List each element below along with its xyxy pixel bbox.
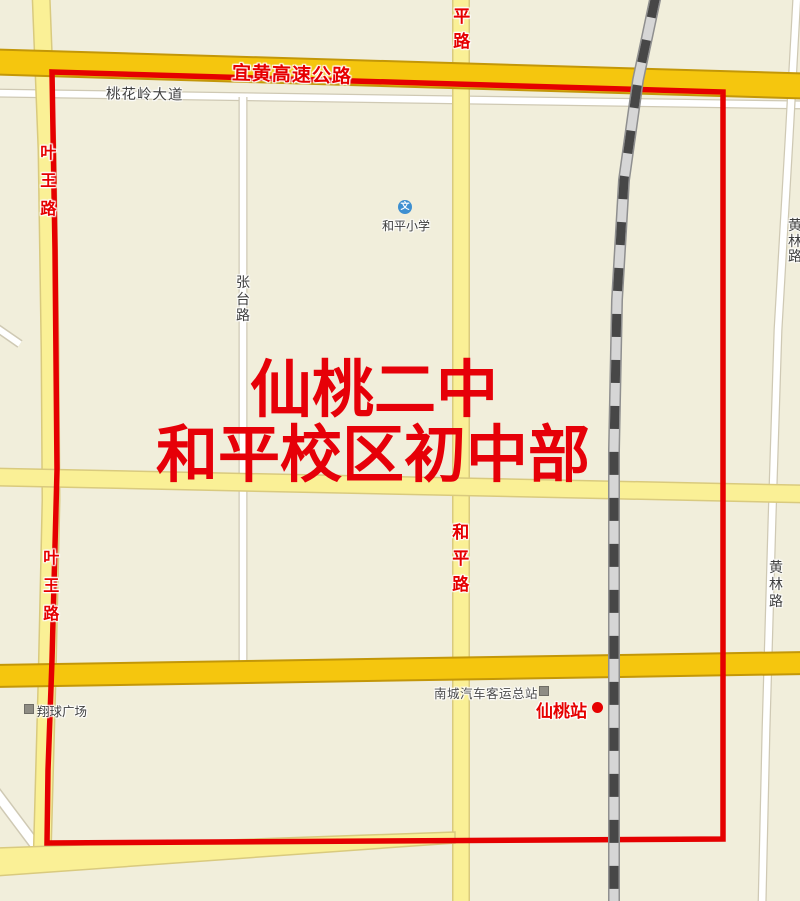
xiantao-station-label: 仙桃站	[536, 697, 587, 722]
huanglin-road-label-south: 黄林路	[768, 560, 784, 611]
railway-casing	[614, 0, 656, 901]
zone-title-line1: 仙桃二中	[250, 358, 498, 422]
expressway-road-label: 宜黄高速公路	[232, 58, 353, 89]
bus-terminal-square-icon	[539, 686, 549, 696]
plaza-square-icon	[24, 704, 34, 714]
road-stub-southwest-fill	[0, 790, 36, 846]
xiantao-station-dot-icon	[592, 702, 603, 713]
yewang-road-label-north: 叶王路	[39, 139, 57, 223]
zone-title-line2: 和平校区初中部	[156, 423, 590, 487]
south-arterial-road-fill	[0, 663, 800, 676]
heping-road-label-mid: 和平路	[451, 520, 471, 598]
huanglin-road-fill	[762, 0, 797, 901]
yewang-road-label-south: 叶王路	[42, 544, 60, 628]
railway-line	[614, 0, 656, 901]
map-canvas: 宜黄高速公路 桃花岭大道 叶王路 叶王路 张台路 平路 和平路 黄林路 黄林路 …	[0, 0, 800, 901]
huanglin-road-label-north: 黄林路	[787, 219, 800, 266]
heping-primary-school-label: 和平小学	[382, 217, 430, 234]
zhangtai-road-label: 张台路	[235, 275, 251, 325]
taohualing-avenue-label: 桃花岭大道	[106, 82, 184, 104]
nancheng-bus-terminal-label: 南城汽车客运总站	[434, 683, 538, 702]
heping-road-label-north: 平路	[452, 5, 472, 55]
school-icon: 文	[398, 200, 412, 214]
xiangqiu-plaza-label: 翔球广场	[37, 701, 87, 720]
